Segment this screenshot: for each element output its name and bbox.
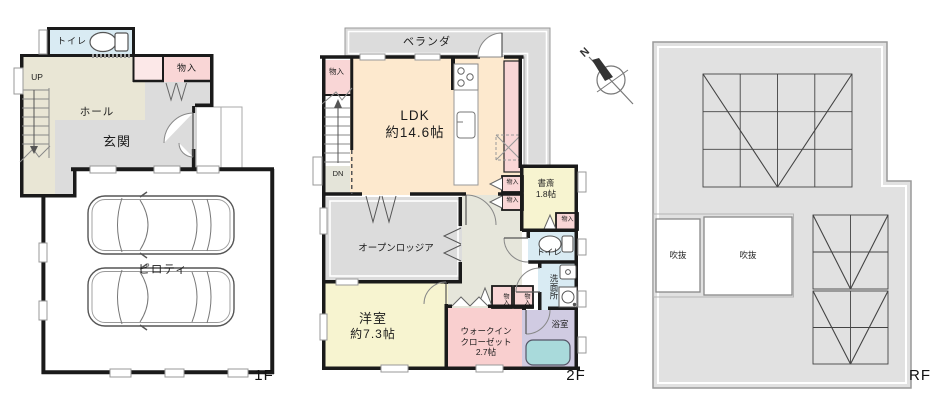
compass-icon	[589, 57, 633, 104]
label-ldk-name: LDK	[355, 108, 475, 125]
label-western: 洋室 約7.3帖	[330, 311, 416, 342]
label-stairs-up: UP	[24, 72, 50, 83]
label-wic-line1: ウォークイン	[446, 326, 526, 337]
label-toilet-1f: トイレ	[50, 36, 94, 47]
floorplan-canvas: トイレ 物入 ホール 玄関 UP ピロティ 1F ベランダ 物入 LDK 約14…	[0, 0, 948, 413]
label-bath: 浴室	[543, 319, 577, 330]
label-storage-a: 物入	[502, 180, 523, 188]
label-storage-stairs: 物入	[323, 67, 350, 76]
toilet-icon	[90, 33, 128, 52]
label-wic-line2: クローゼット	[446, 337, 526, 348]
label-storage-1f: 物入	[165, 63, 209, 74]
floor-1f	[14, 27, 274, 377]
label-closet-b: 物入	[517, 289, 529, 309]
label-wic-size: 2.7帖	[446, 347, 526, 358]
label-western-name: 洋室	[330, 311, 416, 327]
label-void-left: 吹抜	[657, 250, 699, 261]
label-hall: ホール	[65, 106, 129, 119]
label-washroom: 洗面所	[546, 266, 559, 308]
washbasin-icon	[560, 265, 576, 279]
label-veranda: ベランダ	[385, 36, 469, 50]
washing-machine-icon	[559, 287, 577, 307]
label-study-name: 書斎	[522, 178, 570, 189]
label-wic: ウォークイン クローゼット 2.7帖	[446, 326, 526, 358]
label-entrance: 玄関	[85, 134, 149, 150]
label-study: 書斎 1.8帖	[522, 178, 570, 199]
entrance-porch	[196, 107, 242, 169]
label-closet-a: 物入	[496, 289, 508, 309]
label-ldk-size: 約14.6帖	[355, 125, 475, 142]
label-ldk: LDK 約14.6帖	[355, 108, 475, 142]
label-study-size: 1.8帖	[522, 189, 570, 200]
floor-label-1f: 1F	[244, 367, 284, 386]
label-storage-b: 物入	[502, 198, 523, 206]
label-western-size: 約7.3帖	[330, 327, 416, 342]
room-storage-1f-left	[133, 57, 163, 82]
floor-label-2f: 2F	[556, 367, 596, 386]
label-piloti: ピロティ	[121, 263, 205, 277]
label-void-right: 吹抜	[726, 250, 770, 261]
label-stairs-down: DN	[326, 169, 350, 178]
label-storage-study: 物入	[557, 217, 578, 225]
label-toilet-2f: トイレ	[528, 247, 570, 258]
floor-rf	[653, 42, 911, 388]
room-storage-stairs	[323, 60, 350, 94]
kitchen-cupboard	[504, 61, 521, 172]
bathtub-icon	[526, 340, 570, 365]
floor-label-rf: RF	[900, 367, 940, 386]
label-loggia: オープンロッジア	[344, 243, 448, 255]
car-icon	[88, 192, 234, 258]
room-loggia	[326, 197, 462, 280]
